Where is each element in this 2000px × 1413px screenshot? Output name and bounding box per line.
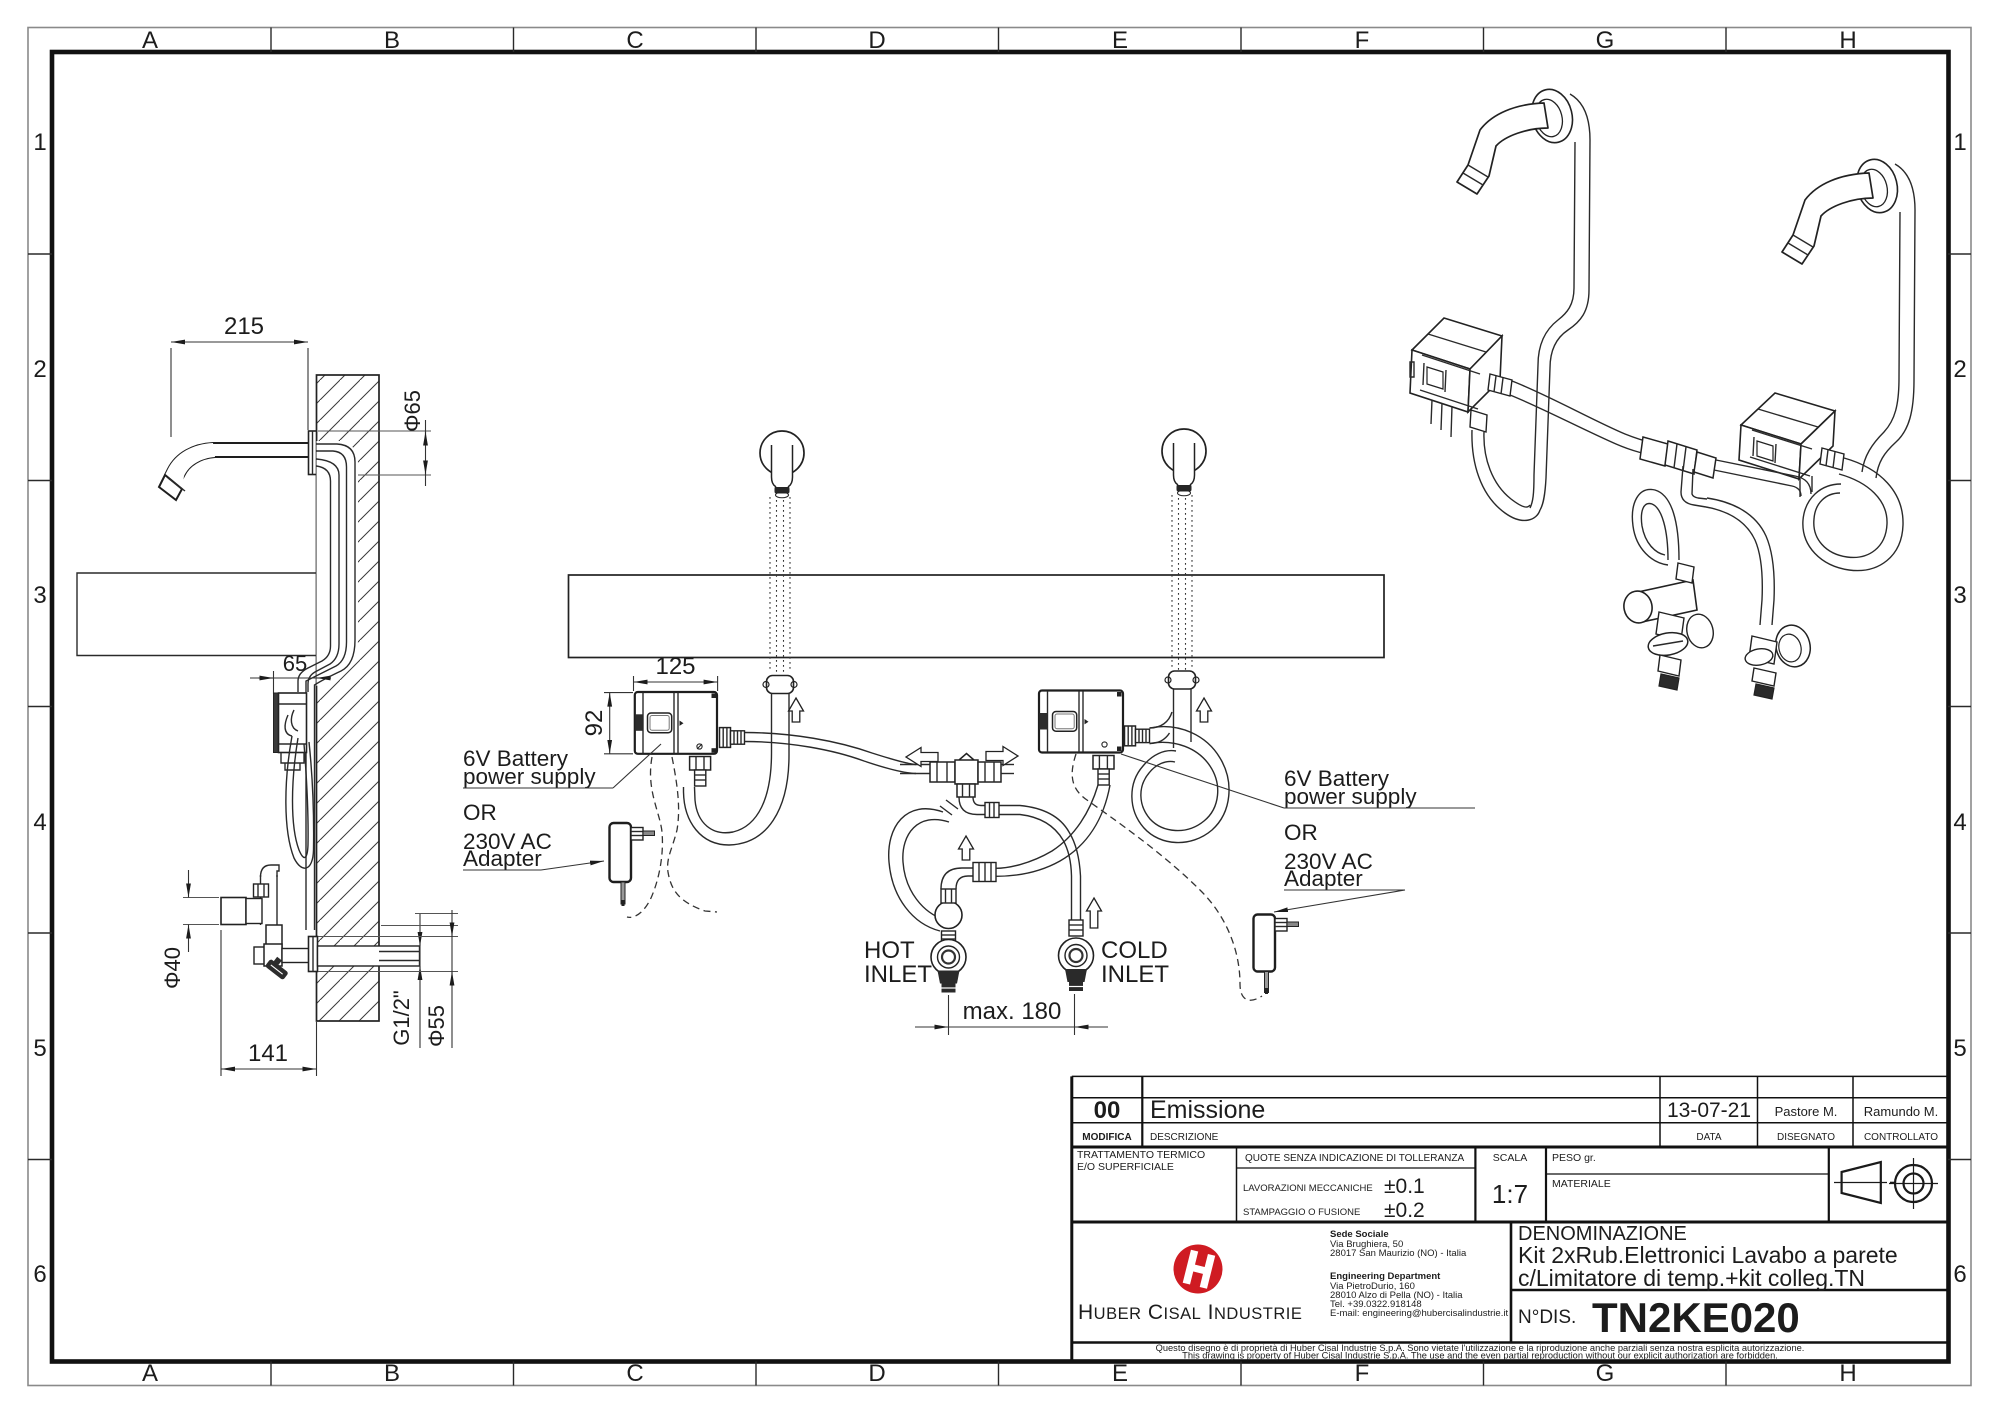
svg-text:13-07-21: 13-07-21 [1667, 1099, 1751, 1122]
svg-text:A: A [142, 27, 158, 54]
svg-text:Φ55: Φ55 [424, 1005, 449, 1047]
svg-text:G1/2": G1/2" [389, 990, 414, 1046]
svg-text:E: E [1112, 1360, 1128, 1387]
svg-text:28017 San Maurizio (NO) - Ital: 28017 San Maurizio (NO) - Italia [1330, 1248, 1467, 1259]
svg-text:max. 180: max. 180 [963, 998, 1062, 1025]
svg-text:DATA: DATA [1696, 1132, 1722, 1143]
svg-text:DISEGNATO: DISEGNATO [1777, 1132, 1835, 1143]
svg-text:F: F [1355, 1360, 1370, 1387]
svg-text:Ramundo M.: Ramundo M. [1864, 1104, 1938, 1119]
svg-text:4: 4 [1953, 809, 1966, 836]
svg-text:STAMPAGGIO O FUSIONE: STAMPAGGIO O FUSIONE [1243, 1207, 1360, 1218]
svg-text:92: 92 [581, 710, 608, 737]
svg-text:2: 2 [1953, 356, 1966, 383]
svg-text:power supply: power supply [463, 764, 596, 789]
svg-text:1: 1 [1953, 129, 1966, 156]
svg-text:TRATTAMENTO TERMICO: TRATTAMENTO TERMICO [1077, 1149, 1205, 1161]
svg-text:1: 1 [33, 129, 46, 156]
svg-text:power supply: power supply [1284, 784, 1417, 809]
svg-text:D: D [868, 27, 885, 54]
svg-text:5: 5 [1953, 1035, 1966, 1062]
svg-text:Adapter: Adapter [1284, 866, 1363, 891]
svg-text:HOT: HOT [864, 937, 915, 964]
svg-text:MODIFICA: MODIFICA [1082, 1132, 1131, 1143]
svg-text:TN2KE020: TN2KE020 [1592, 1294, 1800, 1341]
svg-text:3: 3 [1953, 582, 1966, 609]
svg-text:A: A [142, 1360, 158, 1387]
svg-text:H: H [1839, 27, 1856, 54]
svg-text:Emissione: Emissione [1150, 1096, 1265, 1124]
svg-text:N°DIS.: N°DIS. [1518, 1307, 1576, 1328]
svg-text:G: G [1596, 1360, 1615, 1387]
svg-text:125: 125 [655, 653, 695, 680]
svg-text:6: 6 [33, 1261, 46, 1288]
svg-text:INLET: INLET [864, 961, 932, 988]
svg-text:3: 3 [33, 582, 46, 609]
svg-text:2: 2 [33, 356, 46, 383]
svg-text:E: E [1112, 27, 1128, 54]
svg-text:C: C [626, 1360, 643, 1387]
svg-text:E/O SUPERFICIALE: E/O SUPERFICIALE [1077, 1161, 1174, 1173]
svg-text:5: 5 [33, 1035, 46, 1062]
svg-text:6: 6 [1953, 1261, 1966, 1288]
svg-text:141: 141 [248, 1040, 288, 1067]
svg-text:65: 65 [283, 651, 307, 676]
svg-text:OR: OR [1284, 820, 1318, 845]
svg-text:Φ65: Φ65 [400, 390, 425, 432]
svg-text:Pastore M.: Pastore M. [1775, 1104, 1838, 1119]
svg-text:1:7: 1:7 [1492, 1179, 1528, 1209]
svg-text:HUBER CISAL INDUSTRIE: HUBER CISAL INDUSTRIE [1078, 1301, 1302, 1324]
svg-text:CONTROLLATO: CONTROLLATO [1864, 1132, 1938, 1143]
svg-text:D: D [868, 1360, 885, 1387]
svg-text:4: 4 [33, 809, 46, 836]
svg-text:QUOTE SENZA INDICAZIONE DI TOL: QUOTE SENZA INDICAZIONE DI TOLLERANZA [1245, 1153, 1464, 1164]
svg-text:Φ40: Φ40 [160, 947, 185, 989]
svg-text:SCALA: SCALA [1493, 1152, 1527, 1164]
svg-text:±0.2: ±0.2 [1384, 1199, 1425, 1222]
svg-text:PESO gr.: PESO gr. [1552, 1152, 1596, 1164]
svg-text:215: 215 [224, 313, 264, 340]
svg-text:H: H [1839, 1360, 1856, 1387]
svg-text:B: B [384, 1360, 400, 1387]
svg-text:DESCRIZIONE: DESCRIZIONE [1150, 1132, 1219, 1143]
svg-text:COLD: COLD [1101, 937, 1168, 964]
svg-text:±0.1: ±0.1 [1384, 1175, 1425, 1198]
svg-text:B: B [384, 27, 400, 54]
svg-text:MATERIALE: MATERIALE [1552, 1178, 1611, 1190]
svg-text:INLET: INLET [1101, 961, 1169, 988]
svg-text:This drawing is property of Hu: This drawing is property of Huber Cisal … [1182, 1351, 1778, 1361]
svg-text:OR: OR [463, 800, 497, 825]
svg-text:E-mail: engineering@hubercisal: E-mail: engineering@hubercisalindustrie.… [1330, 1308, 1508, 1319]
svg-text:c/Limitatore di temp.+kit coll: c/Limitatore di temp.+kit colleg.TN [1518, 1265, 1865, 1291]
svg-text:00: 00 [1094, 1097, 1121, 1124]
svg-text:C: C [626, 27, 643, 54]
svg-text:LAVORAZIONI MECCANICHE: LAVORAZIONI MECCANICHE [1243, 1183, 1373, 1194]
svg-text:Adapter: Adapter [463, 846, 542, 871]
svg-text:G: G [1596, 27, 1615, 54]
svg-text:F: F [1355, 27, 1370, 54]
